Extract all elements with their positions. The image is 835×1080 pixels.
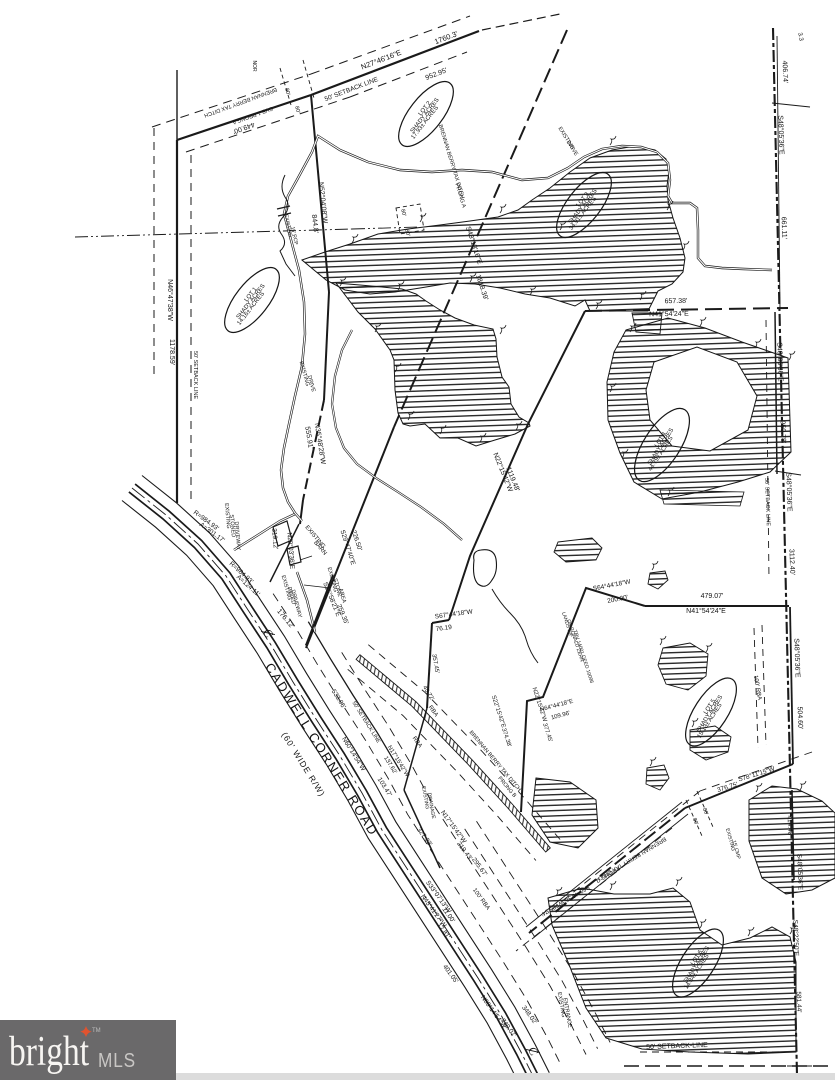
svg-text:N41°54'24"E: N41°54'24"E (686, 607, 726, 615)
svg-text:406.74': 406.74' (781, 60, 789, 83)
svg-text:50' SETBACK LINE: 50' SETBACK LINE (192, 351, 198, 399)
svg-text:1178.59': 1178.59' (168, 339, 175, 365)
svg-text:S48°05'36"E: S48°05'36"E (776, 115, 785, 155)
svg-text:504.60': 504.60' (796, 706, 804, 729)
svg-text:S48°05'36"E: S48°05'36"E (775, 342, 784, 382)
svg-text:NOR: NOR (251, 60, 257, 72)
svg-text:479.07': 479.07' (701, 593, 724, 600)
svg-text:N41°54'24"E: N41°54'24"E (649, 310, 689, 319)
svg-text:581.44': 581.44' (795, 991, 803, 1012)
svg-text:TM: TM (92, 1028, 101, 1034)
svg-text:657.38': 657.38' (665, 298, 688, 305)
svg-text:661.11': 661.11' (780, 217, 788, 239)
svg-text:414.48': 414.48' (786, 815, 794, 836)
svg-text:S48°22'50"E: S48°22'50"E (791, 920, 800, 957)
svg-text:bright: bright (9, 1029, 89, 1075)
svg-text:S48°05'36"E: S48°05'36"E (795, 854, 804, 891)
svg-text:950.78': 950.78' (779, 420, 787, 443)
svg-text:S48°05'36"E: S48°05'36"E (784, 472, 793, 512)
svg-text:S48°05'36"E: S48°05'36"E (792, 638, 801, 678)
svg-text:3112.40': 3112.40' (788, 549, 796, 575)
svg-text:MLS: MLS (98, 1050, 136, 1072)
svg-text:N46°47'38"W: N46°47'38"W (166, 279, 174, 321)
